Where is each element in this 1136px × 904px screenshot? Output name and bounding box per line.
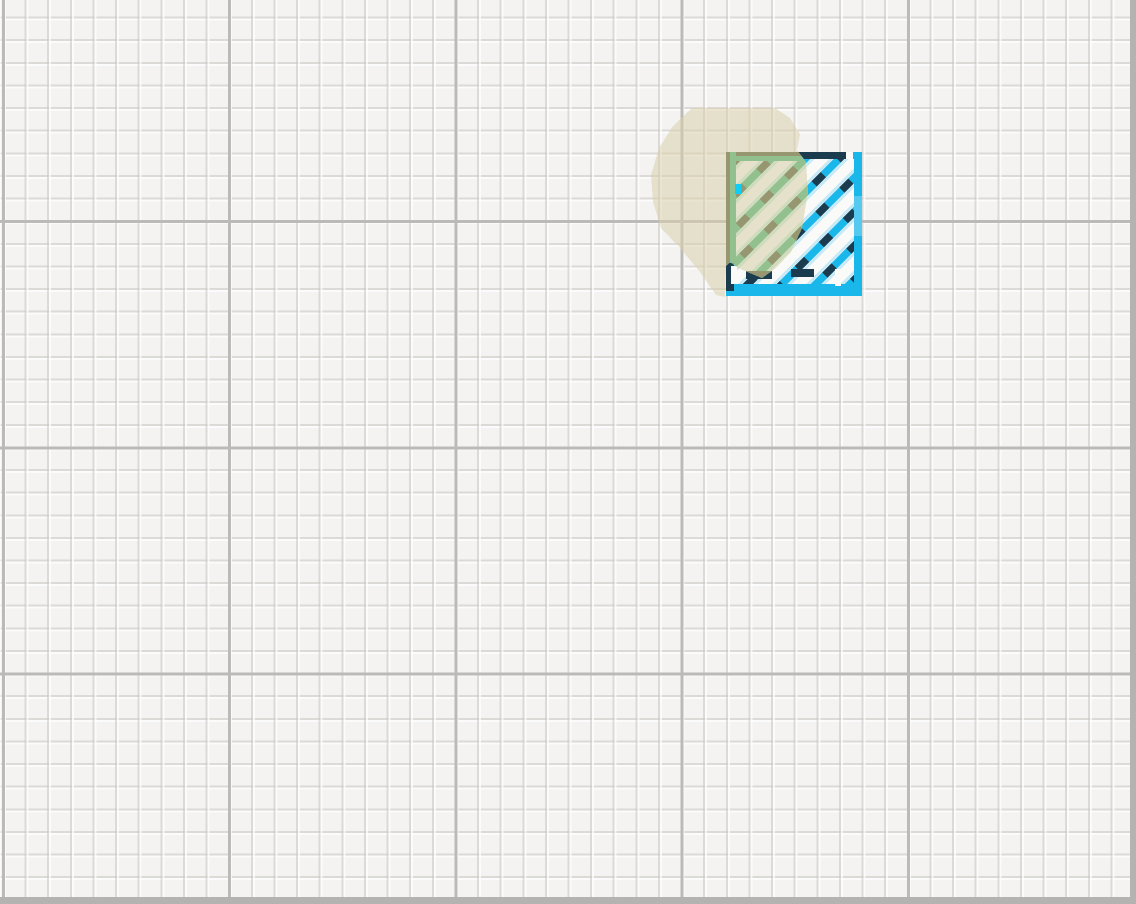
stripe-highlight-blip [735, 184, 741, 194]
canvas-edge-right [1130, 0, 1136, 904]
drawing-canvas[interactable] [0, 0, 1136, 904]
artwork-layer [0, 0, 1136, 904]
canvas-edge-bottom [0, 897, 1136, 904]
